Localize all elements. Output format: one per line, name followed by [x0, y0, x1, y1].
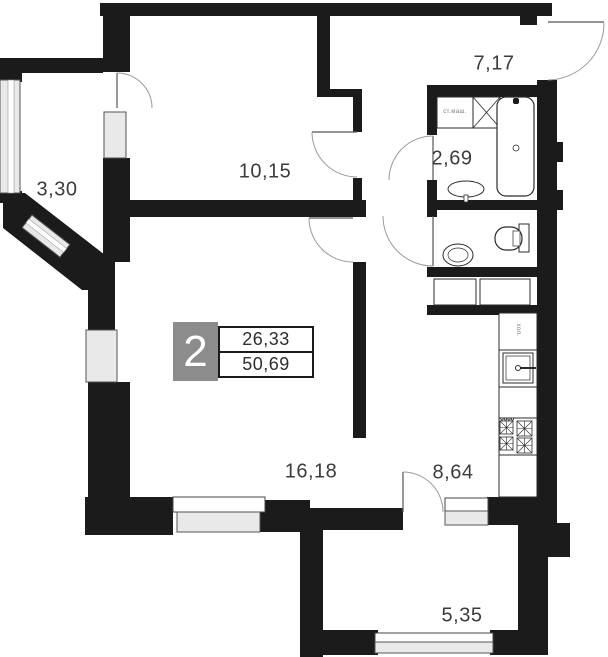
wall-kitchen-bottom-right	[487, 497, 537, 525]
toilet-icon	[495, 224, 529, 252]
area-label-balcony-bottom: 5,35	[442, 605, 483, 628]
wall-loggia-cap-top	[0, 58, 22, 82]
wall-living-bottom-right	[258, 500, 310, 532]
kitchen-counter	[499, 313, 537, 497]
area-label-loggia-left: 3,30	[37, 179, 78, 202]
wall-bedroom-right	[317, 16, 330, 89]
shaft-boxes	[434, 279, 530, 305]
wall-corridor-lower	[353, 262, 366, 438]
window-kitchen-balcony-sill	[445, 511, 488, 525]
loggia-door	[117, 73, 152, 108]
window-balcony-block	[104, 112, 126, 158]
area-label-bathroom: 2,69	[432, 148, 473, 171]
wall-hall-step	[317, 89, 362, 97]
living-area-value: 26,33	[220, 328, 312, 351]
wall-bathroom-left-upper	[427, 97, 437, 135]
apartment-areas-table: 26,33 50,69	[218, 326, 314, 378]
wall-wc-bottom	[427, 267, 537, 277]
wall-bathroom-left-mid	[427, 180, 437, 217]
kitchen-sink-icon	[503, 353, 536, 383]
bathroom-door	[389, 136, 433, 180]
window-loggia-left-inner	[8, 80, 14, 193]
entrance-door	[548, 22, 604, 80]
wall-top	[100, 3, 552, 16]
wall-bedroom-bottom	[130, 200, 366, 217]
apartment-badge: 2 26,33 50,69	[173, 322, 314, 381]
bathtub-icon	[497, 97, 534, 196]
bedroom-door	[312, 132, 357, 177]
floor-plan: 3,30 10,15 7,17 2,69 16,18 8,64 5,35 ст.…	[0, 0, 608, 657]
wall-bedroom-left-bottom	[103, 158, 130, 262]
wall-entrance-jamb	[520, 16, 537, 25]
total-area-value: 50,69	[220, 351, 312, 376]
window-kitchen-balcony	[445, 498, 488, 511]
window-living-left	[86, 330, 117, 382]
wall-bathroom-top	[427, 85, 537, 97]
wall-bottom-right-step	[518, 523, 570, 557]
window-balcony-bottom-sill	[375, 642, 493, 653]
window-living-bottom	[173, 497, 265, 512]
window-balcony-bottom	[375, 633, 493, 642]
washing-machine-label: ст.маш.	[443, 109, 467, 115]
bathroom-sink-icon	[448, 181, 484, 202]
wall-living-bottom-left	[85, 497, 173, 535]
wall-bedroom-left-top	[103, 16, 130, 72]
wall-bathroom-wc-divider	[437, 200, 537, 210]
area-label-bedroom: 10,15	[239, 161, 292, 184]
wall-right	[537, 80, 557, 523]
wall-living-left-lower	[88, 382, 130, 499]
window-living-bottom-sill	[177, 512, 260, 532]
wall-under-corridor	[320, 508, 403, 530]
wc-door	[383, 216, 433, 266]
wc-sink-icon	[443, 244, 473, 266]
living-room-door	[309, 218, 353, 262]
apartment-number: 2	[173, 322, 218, 381]
wall-balcony-bottom-right	[490, 630, 548, 655]
wall-nub-2	[557, 190, 563, 210]
wall-nub-1	[557, 142, 563, 162]
area-label-living-room: 16,18	[285, 461, 338, 484]
wall-corridor-upper	[353, 97, 362, 132]
area-label-hallway: 7,17	[474, 53, 515, 76]
area-label-kitchen: 8,64	[433, 462, 474, 485]
fridge-label: хол.	[515, 324, 521, 337]
